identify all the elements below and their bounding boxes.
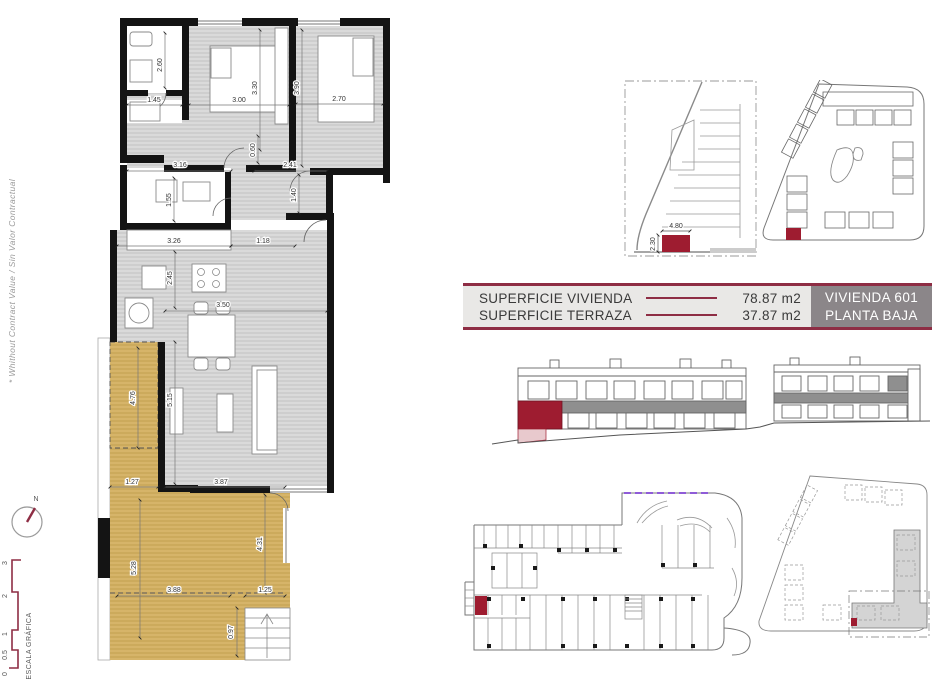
dim-label: 1.55 [166,193,173,207]
plan-sheet: * Whithout Contract Value / Sin Valor Co… [0,0,935,682]
road-edge [634,82,756,252]
surface-info-table: SUPERFICIE VIVIENDA 78.87 m2 SUPERFICIE … [463,283,932,330]
dim-label: 3.26 [167,238,181,245]
dim-label: 3.87 [214,479,228,486]
surface-label: SUPERFICIE TERRAZA [479,308,632,323]
parking-stalls [662,104,740,238]
garage-stalls [465,525,714,650]
garage-plan [462,478,757,675]
dim-label: 5.15 [167,393,174,407]
highlighted-unit [851,618,857,626]
leader-line [646,314,717,316]
north-label: N [33,496,38,503]
table-row: SUPERFICIE TERRAZA 37.87 m2 [479,308,801,323]
site-plan-ground [757,80,932,255]
housing-units [781,80,913,228]
unit-id-box: VIVIENDA 601 PLANTA BAJA [811,286,932,327]
scale-tick: 3 [2,561,9,565]
dim-label: 3.16 [173,162,187,169]
dim-label: 1.25 [258,587,272,594]
unit-number: VIVIENDA 601 [825,290,918,305]
pool [831,148,863,183]
garage-boundary [465,493,753,655]
scale-tick: 0.5 [2,650,9,660]
columns [483,544,697,648]
surface-label: SUPERFICIE VIVIENDA [479,291,632,306]
floor-plan: 1.45 3.00 2.70 2.60 3.30 3.90 0.60 3.16 … [70,8,392,668]
building-b [774,357,920,421]
dim-label: 1.18 [256,238,270,245]
highlighted-parking-space [662,235,690,252]
scale-tick: 0 [2,672,9,676]
table-row: SUPERFICIE VIVIENDA 78.87 m2 [479,291,801,306]
dim-label: 0.97 [228,625,235,639]
dim-label: 4.76 [130,391,137,405]
dim-label: 5.28 [131,561,138,575]
dim-label: 4.31 [257,537,264,551]
scale-label: ESCALA GRÁFICA [24,612,33,679]
surface-value: 78.87 m2 [731,291,801,306]
dim-label: 1.40 [291,188,298,202]
graphic-scale: 3 2 1 0.5 0 ESCALA GRÁFICA [0,554,46,680]
dim-label: 2.41 [283,162,297,169]
basement-footprint [852,530,927,628]
parking-detail-plan: 4.80 2.30 [622,78,759,260]
dim-label: 0.60 [250,143,257,157]
highlighted-elevation-unit [518,401,562,429]
dim-label: 2.60 [157,58,164,72]
scale-tick: 2 [2,594,9,598]
highlighted-unit [786,228,801,240]
dim-label: 3.00 [232,97,246,104]
scale-tick: 1 [2,632,9,636]
sidewalk [710,248,756,253]
disclaimer-text: * Whithout Contract Value / Sin Valor Co… [7,109,17,453]
scale-bar [9,560,21,668]
dim-label: 2.70 [332,96,346,103]
plot-boundary [625,81,756,256]
building-elevation [490,355,932,447]
dim-label: 3.88 [167,587,181,594]
site-plan-basement [757,473,935,645]
surface-rows: SUPERFICIE VIVIENDA 78.87 m2 SUPERFICIE … [463,286,811,327]
north-compass: N [4,490,52,546]
dim-label: 1.27 [125,479,139,486]
dim-label: 1.45 [147,97,161,104]
leader-line [646,297,717,299]
unit-floor: PLANTA BAJA [825,308,918,323]
compass-needle-icon [27,508,35,522]
dim-label: 2.45 [167,271,174,285]
dim-label: 3.90 [294,81,301,95]
dim-label: 3.50 [216,302,230,309]
ramp-arcs [637,501,737,596]
dim-label: 4.80 [669,223,683,230]
surface-value: 37.87 m2 [731,308,801,323]
dim-label: 3.30 [252,81,259,95]
highlighted-storage [475,596,487,615]
dim-label: 2.30 [650,237,657,251]
